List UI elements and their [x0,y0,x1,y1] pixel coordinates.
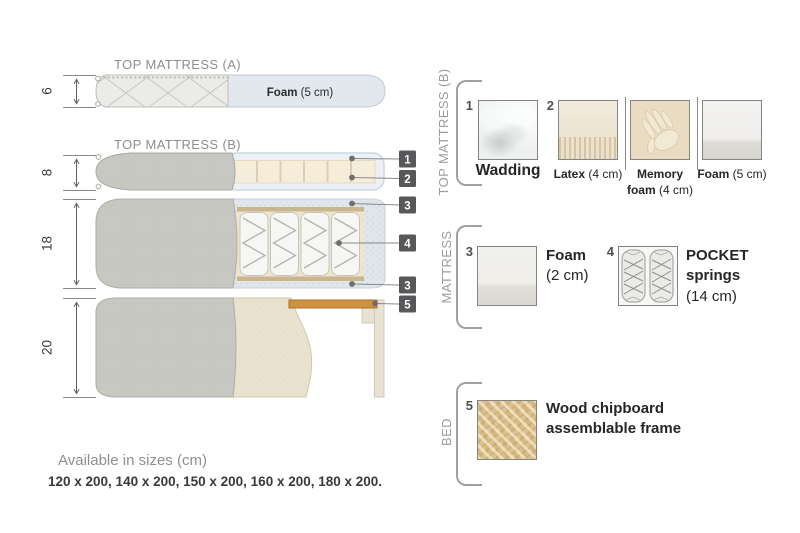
callout-badges: 1 2 3 4 3 5 [399,151,416,313]
foam-5cm-swatch [702,100,762,160]
frame-corner-block [362,308,375,323]
wadding-caption: Wadding [463,161,553,181]
callout-badge-2: 2 [404,174,410,186]
callout-badge-4: 4 [404,239,411,251]
dimension-indicators [63,76,96,398]
foam-layer-label: Foam (5 cm) [267,87,334,99]
foam-5cm-caption: Foam (5 cm) [687,167,777,183]
top-mattress-b-shape [96,153,384,190]
legend-section-mattress-label: MATTRESS [439,222,454,312]
memory-foam-swatch [630,100,690,160]
legend-divider-1 [625,97,626,170]
legend-section-top-mattress-b-label: TOP MATTRESS (B) [436,68,451,196]
pocket-springs-caption: POCKET springs (14 cm) [686,246,749,307]
foam-2cm-swatch [477,246,537,306]
latex-swatch [558,100,618,160]
legend-section-bed-label: BED [439,382,454,482]
available-sizes-list: 120 x 200, 140 x 200, 150 x 200, 160 x 2… [48,474,382,489]
callout-badge-5: 5 [404,300,411,312]
callout-badge-3-top: 3 [404,201,410,213]
wood-slat [289,300,377,308]
dim-mattress: 18 [40,236,55,251]
wood-chipboard-caption: Wood chipboard assemblable frame [546,399,681,440]
legend-item-number-2: 2 [540,98,554,113]
legend-item-number-5: 5 [459,398,473,413]
wood-chipboard-swatch [477,400,537,460]
mattress-construction-infographic: 6 8 18 20 TOP MATTRESS (A) Foam (5 cm) T… [0,0,800,533]
hand-imprint-image [631,101,689,159]
pocket-springs-swatch [618,246,678,306]
legend-item-number-4: 4 [600,244,614,259]
top-mattress-b-title: TOP MATTRESS (B) [114,137,241,152]
callout-badge-3-bottom: 3 [404,281,410,293]
legend-divider-2 [697,97,698,170]
frame-leg [375,300,385,397]
dim-top-mattress-b: 8 [40,169,55,177]
top-mattress-a-title: TOP MATTRESS (A) [114,57,241,72]
dim-bed: 20 [40,340,55,355]
available-sizes-title: Available in sizes (cm) [58,452,207,469]
pocket-springs-image [619,247,677,305]
foam-2cm-caption: Foam (2 cm) [546,246,589,287]
dim-top-mattress-a: 6 [40,87,55,95]
wadding-swatch [478,100,538,160]
legend-item-number-3: 3 [459,244,473,259]
bed-base-shape [96,298,384,397]
callout-badge-1: 1 [404,155,411,167]
legend-item-number-1: 1 [459,98,473,113]
top-mattress-a-shape: Foam (5 cm) [96,75,385,107]
